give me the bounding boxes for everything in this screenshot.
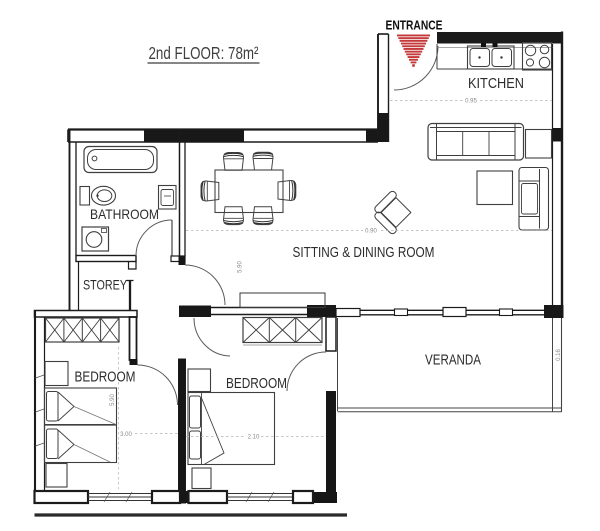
svg-text:2.10: 2.10: [248, 435, 260, 441]
svg-text:0.90: 0.90: [365, 229, 377, 235]
svg-text:0.95: 0.95: [465, 99, 477, 105]
svg-text:SITTING & DINING ROOM: SITTING & DINING ROOM: [293, 245, 435, 261]
svg-text:3.00: 3.00: [120, 432, 132, 438]
svg-text:KITCHEN: KITCHEN: [468, 76, 524, 92]
svg-text:BEDROOM: BEDROOM: [75, 369, 136, 386]
svg-text:ENTRANCE: ENTRANCE: [386, 19, 443, 33]
svg-text:2nd FLOOR: 78m²: 2nd FLOOR: 78m²: [149, 43, 259, 63]
svg-text:0.16: 0.16: [556, 349, 562, 361]
svg-text:BEDROOM: BEDROOM: [226, 375, 287, 392]
svg-text:STOREY: STOREY: [83, 277, 128, 293]
svg-text:VERANDA: VERANDA: [425, 353, 481, 369]
svg-text:5.90: 5.90: [238, 261, 244, 273]
svg-text:5.90: 5.90: [110, 394, 116, 406]
svg-text:BATHROOM: BATHROOM: [90, 206, 159, 222]
